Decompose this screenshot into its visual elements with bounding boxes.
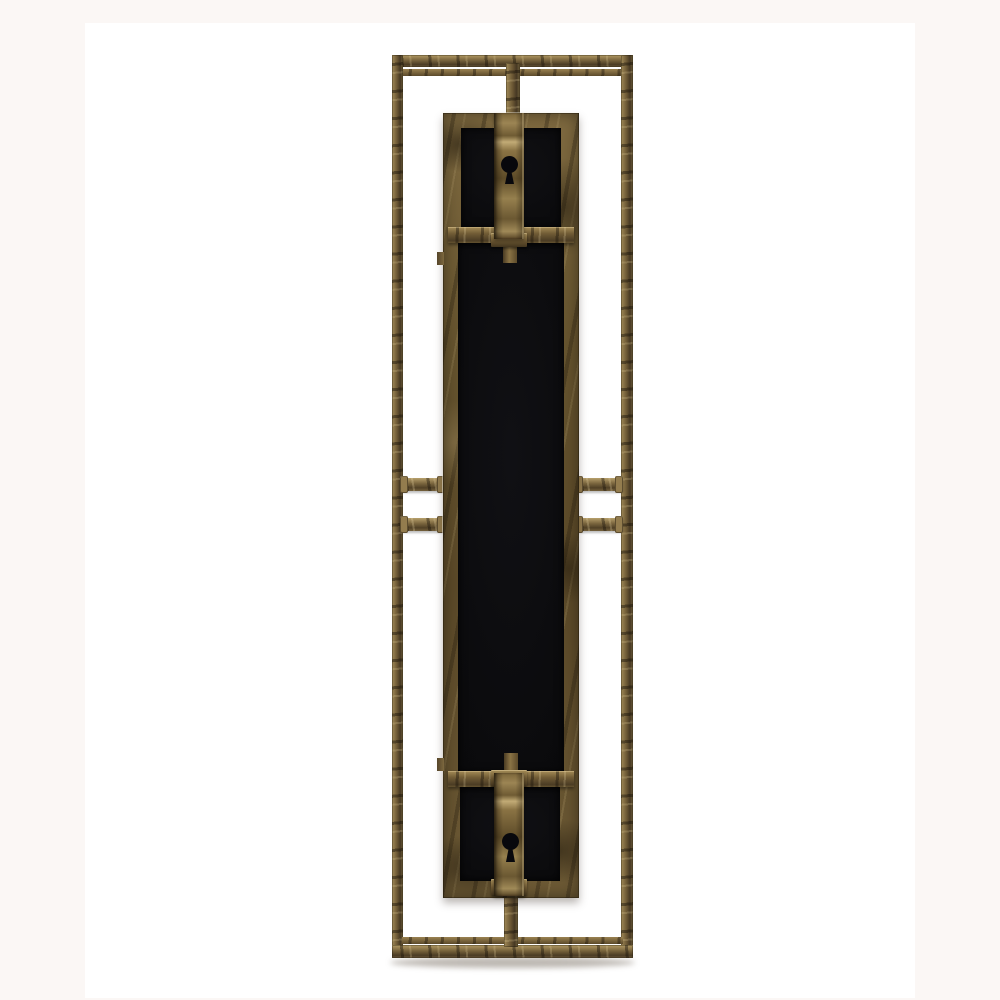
panel-black-section-main — [458, 243, 564, 773]
brace-end-cap — [400, 476, 408, 493]
drop-shadow — [390, 957, 635, 968]
panel-edge-tab — [437, 252, 444, 265]
side-brace-left-lower — [400, 518, 445, 531]
keyhole-circle — [501, 156, 518, 173]
mirror-frame-back — [0, 0, 1000, 1000]
side-brace-right-upper — [575, 478, 623, 491]
backing-panel — [443, 113, 579, 898]
product-photo-canvas — [0, 0, 1000, 1000]
brace-end-cap — [615, 476, 623, 493]
panel-edge-tab — [437, 758, 444, 771]
top-hanger-connector-strap — [506, 63, 520, 115]
brace-end-cap — [615, 516, 623, 533]
outer-frame-right-rail — [621, 55, 633, 958]
outer-frame-left-rail — [392, 55, 403, 958]
brace-end-cap — [400, 516, 408, 533]
side-brace-left-upper — [400, 478, 445, 491]
side-brace-right-lower — [575, 518, 623, 531]
bottom-hanger-connector-strap — [504, 896, 518, 947]
keyhole-circle — [502, 833, 519, 850]
